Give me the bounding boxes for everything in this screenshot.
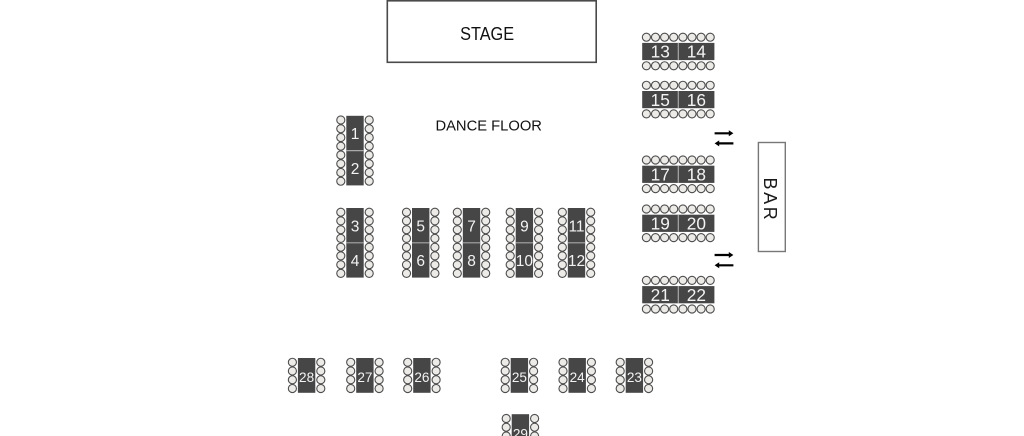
svg-text:18: 18 <box>687 164 706 184</box>
svg-text:DANCE FLOOR: DANCE FLOOR <box>435 118 542 134</box>
svg-text:28: 28 <box>299 370 314 385</box>
svg-text:15: 15 <box>651 90 670 110</box>
svg-text:26: 26 <box>414 370 429 385</box>
svg-text:5: 5 <box>416 218 425 235</box>
svg-text:2: 2 <box>351 161 360 178</box>
svg-text:6: 6 <box>416 253 425 270</box>
svg-text:14: 14 <box>687 42 707 62</box>
svg-text:27: 27 <box>357 370 372 385</box>
svg-text:21: 21 <box>651 285 670 305</box>
svg-text:17: 17 <box>651 164 670 184</box>
svg-text:3: 3 <box>351 218 360 235</box>
svg-text:9: 9 <box>520 218 529 235</box>
svg-text:BAR: BAR <box>760 177 780 222</box>
svg-text:23: 23 <box>627 370 642 385</box>
svg-text:10: 10 <box>516 253 534 270</box>
svg-text:7: 7 <box>467 218 476 235</box>
svg-text:20: 20 <box>687 213 706 233</box>
svg-text:19: 19 <box>651 213 670 233</box>
svg-text:1: 1 <box>351 126 360 143</box>
svg-text:4: 4 <box>351 253 360 270</box>
svg-text:25: 25 <box>512 370 527 385</box>
svg-text:22: 22 <box>687 285 706 305</box>
svg-text:12: 12 <box>568 253 585 270</box>
svg-text:24: 24 <box>570 370 586 385</box>
svg-text:16: 16 <box>687 90 706 110</box>
svg-text:11: 11 <box>568 218 584 235</box>
svg-text:29: 29 <box>513 426 528 436</box>
svg-text:13: 13 <box>651 42 670 62</box>
svg-text:STAGE: STAGE <box>460 24 514 44</box>
svg-text:8: 8 <box>467 253 476 270</box>
